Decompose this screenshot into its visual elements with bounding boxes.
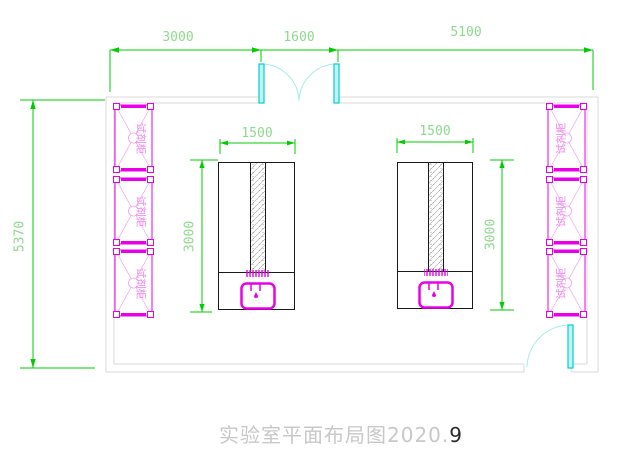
dimension-left <box>20 100 105 368</box>
room-walls <box>106 97 598 372</box>
door-leaf-right <box>334 64 339 103</box>
lab-bench-left <box>219 163 295 310</box>
sink-left <box>242 270 275 309</box>
lab-bench-right <box>398 163 473 309</box>
reagent-cabinets-left <box>114 104 154 318</box>
door-leaf <box>568 325 573 368</box>
dimension-bench-left-depth <box>190 160 218 312</box>
dimension-bench-right-depth <box>490 160 514 310</box>
double-door <box>259 64 339 103</box>
dimension-bench-right-width <box>397 138 473 153</box>
reagent-cabinets-right <box>547 104 587 318</box>
single-door <box>527 325 573 368</box>
cad-drawing <box>0 0 619 469</box>
dimension-bench-left-width <box>220 139 295 154</box>
door-leaf-left <box>259 64 264 103</box>
drain-icon <box>254 292 258 298</box>
sink-right <box>420 269 453 308</box>
drawing-canvas: 3000 1600 5100 5370 1500 3000 1500 3000 … <box>0 0 619 469</box>
dimension-top <box>110 47 593 92</box>
drain-icon <box>432 291 436 297</box>
